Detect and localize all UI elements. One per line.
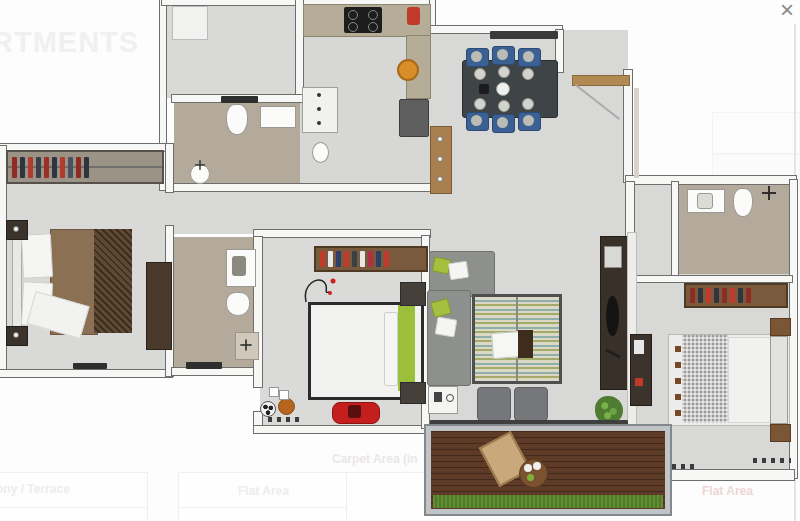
wall bbox=[296, 0, 303, 100]
wall bbox=[172, 184, 434, 191]
wall bbox=[632, 276, 792, 282]
deck-plant-dish bbox=[527, 474, 534, 481]
right-wardrobe bbox=[684, 283, 788, 308]
toilet bbox=[226, 104, 248, 135]
corridor-floor bbox=[168, 188, 432, 234]
kids-cabinet bbox=[400, 382, 426, 404]
bed-button bbox=[675, 362, 681, 368]
console-knob bbox=[437, 156, 443, 162]
wardrobe-cloth bbox=[368, 251, 373, 266]
dining-chair bbox=[518, 112, 541, 131]
media-wall-frame bbox=[604, 246, 622, 268]
center-plate bbox=[496, 82, 510, 96]
stove-burner bbox=[368, 22, 378, 32]
kitchen-sink bbox=[312, 142, 329, 163]
basketball bbox=[278, 398, 295, 415]
toy-dice bbox=[269, 387, 279, 397]
unit-slot bbox=[634, 340, 644, 354]
wardrobe-cloth bbox=[60, 157, 65, 178]
wall bbox=[626, 176, 796, 184]
wardrobe-cloth bbox=[722, 288, 727, 303]
kitchen-red-jar bbox=[407, 7, 420, 25]
soccer-ball bbox=[260, 401, 276, 417]
right-bed-duvet bbox=[728, 337, 772, 423]
plate bbox=[522, 98, 534, 110]
wardrobe-cloth bbox=[706, 288, 711, 303]
tv-oval bbox=[606, 296, 619, 336]
wall bbox=[166, 144, 173, 192]
wardrobe-cloth bbox=[84, 157, 89, 178]
plate bbox=[498, 66, 510, 78]
nightstand-knob bbox=[13, 332, 19, 338]
toy-dice bbox=[279, 390, 289, 400]
wardrobe-cloth bbox=[328, 251, 333, 266]
wardrobe-cloth bbox=[376, 251, 381, 266]
master-bed-throw bbox=[94, 229, 132, 333]
wardrobe-cloth bbox=[360, 251, 365, 266]
coffee-table-tray bbox=[518, 330, 533, 358]
plate bbox=[474, 98, 486, 110]
ottoman bbox=[477, 387, 511, 421]
wall bbox=[626, 182, 634, 237]
cabinet-glyph bbox=[434, 392, 442, 402]
bathroom1-mat bbox=[221, 96, 258, 103]
dining-window-header bbox=[490, 31, 558, 39]
wardrobe-cloth bbox=[730, 288, 735, 303]
dining-chair bbox=[466, 112, 489, 131]
floorplan-image[interactable] bbox=[0, 0, 800, 521]
wardrobe-cloth bbox=[20, 157, 25, 178]
dining-chair bbox=[466, 48, 489, 67]
wardrobe-cloth bbox=[336, 251, 341, 266]
deck-plate bbox=[533, 462, 541, 470]
wall-lamp-decor bbox=[300, 272, 344, 306]
deck-plate bbox=[524, 464, 532, 472]
wardrobe-cloth bbox=[690, 288, 695, 303]
wardrobe-cloth bbox=[12, 157, 17, 178]
bed-button bbox=[675, 346, 681, 352]
unit-slot bbox=[635, 378, 643, 386]
bed-button bbox=[675, 378, 681, 384]
fridge bbox=[399, 99, 429, 137]
plate bbox=[474, 68, 486, 80]
wall bbox=[254, 230, 430, 237]
wall bbox=[790, 180, 797, 478]
wardrobe-cloth bbox=[68, 157, 73, 178]
lightbox-screen: RTMENTS Carpet Area (in ony / Terrace Fl… bbox=[0, 0, 800, 521]
toilet bbox=[733, 188, 753, 217]
deck-grass bbox=[433, 495, 663, 508]
dining-chair bbox=[518, 48, 541, 67]
console-knob bbox=[437, 176, 443, 182]
bathroom-sink bbox=[260, 106, 296, 128]
wardrobe-cloth bbox=[52, 157, 57, 178]
close-button[interactable]: × bbox=[780, 0, 794, 24]
ottoman bbox=[514, 387, 548, 421]
right-bedroom-dashes bbox=[753, 458, 791, 463]
faucet-icon bbox=[762, 186, 776, 200]
fruit-bowl bbox=[397, 59, 419, 81]
nightstand-knob bbox=[13, 226, 19, 232]
wall bbox=[624, 70, 632, 182]
dining-chair bbox=[492, 114, 515, 133]
toy-car-window bbox=[348, 405, 361, 418]
nightstand bbox=[770, 424, 791, 442]
stove-burner bbox=[348, 10, 358, 20]
kids-room-dashes bbox=[268, 417, 302, 422]
utility-bed bbox=[172, 6, 208, 40]
bed-button bbox=[675, 410, 681, 416]
wardrobe-cloth bbox=[36, 157, 41, 178]
dining-chair bbox=[492, 46, 515, 65]
shower-faucet-icon bbox=[240, 339, 251, 350]
kids-wardrobe bbox=[314, 246, 428, 272]
mid-bathroom-mat bbox=[186, 362, 222, 369]
entry-wall-pink bbox=[634, 88, 639, 178]
mid-bath-basin bbox=[232, 256, 246, 276]
wardrobe-cloth bbox=[344, 251, 349, 266]
bed-button bbox=[675, 394, 681, 400]
master-wardrobe bbox=[6, 150, 164, 184]
cabinet-glyph bbox=[446, 394, 454, 402]
wardrobe-cloth bbox=[714, 288, 719, 303]
master-pillow bbox=[21, 233, 53, 279]
wall bbox=[172, 368, 260, 375]
console-knob bbox=[437, 136, 443, 142]
wardrobe-cloth bbox=[28, 157, 33, 178]
table-centerpiece bbox=[479, 84, 489, 94]
wardrobe-cloth bbox=[746, 288, 751, 303]
kids-bed-pillow bbox=[384, 312, 398, 386]
drawer-knob bbox=[317, 93, 321, 97]
wardrobe-cloth bbox=[738, 288, 743, 303]
plate bbox=[522, 68, 534, 80]
stove-burner bbox=[368, 10, 378, 20]
right-bath-basin bbox=[697, 193, 713, 209]
drawer-knob bbox=[317, 121, 321, 125]
wardrobe-cloth bbox=[320, 251, 325, 266]
wardrobe-cloth bbox=[698, 288, 703, 303]
master-dresser bbox=[146, 262, 172, 350]
drawer-knob bbox=[317, 107, 321, 111]
plate bbox=[498, 100, 510, 112]
kids-bed-green-accent bbox=[398, 305, 415, 391]
sofa-pillow bbox=[435, 316, 458, 337]
right-bed-throw bbox=[682, 335, 728, 423]
wardrobe-cloth bbox=[384, 251, 389, 266]
living-side-cabinet bbox=[428, 386, 458, 414]
toilet bbox=[226, 292, 250, 316]
right-bed-headboard bbox=[770, 336, 788, 424]
stove-burner bbox=[348, 22, 358, 32]
faucet-icon bbox=[195, 160, 205, 170]
kids-cabinet bbox=[400, 282, 426, 306]
entry-door-leaf bbox=[572, 75, 630, 86]
nightstand bbox=[770, 318, 791, 336]
sofa-pillow bbox=[448, 261, 469, 280]
wall bbox=[672, 182, 678, 278]
wardrobe-cloth bbox=[44, 157, 49, 178]
wardrobe-cloth bbox=[352, 251, 357, 266]
master-window-bar bbox=[73, 363, 107, 369]
wardrobe-cloth bbox=[76, 157, 81, 178]
wall bbox=[0, 370, 172, 377]
wall bbox=[254, 426, 432, 433]
